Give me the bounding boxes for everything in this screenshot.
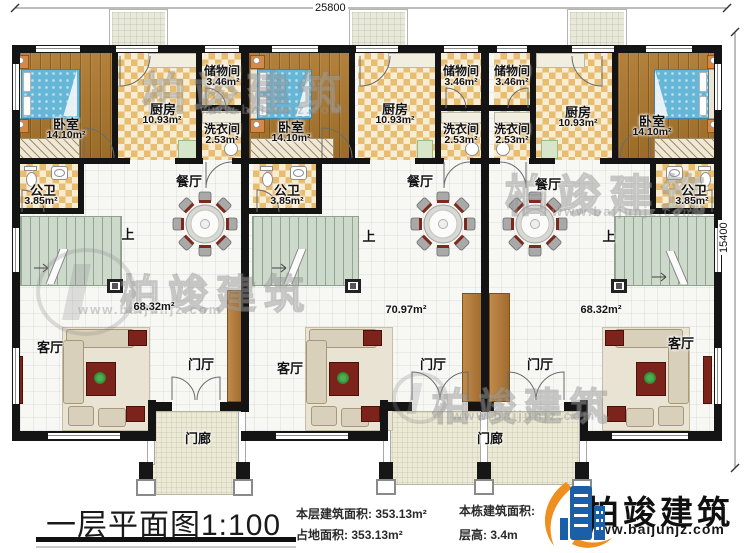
room-area-bedroom-right: 14.10m²: [632, 126, 671, 138]
logo-tower-small: [560, 518, 568, 540]
room-label-porch-left: 门廊: [185, 428, 211, 447]
room-label-living-right: 客厅: [668, 333, 694, 352]
room-area-laundry-right: 2.53m²: [495, 134, 528, 146]
room-label-dining-middle: 餐厅: [407, 171, 433, 190]
room-label-living-left: 客厅: [37, 337, 63, 356]
title-underline-light: [36, 546, 296, 548]
watermark-url: www.baijunjz.com: [200, 102, 344, 117]
stairs-up-label-right: 上: [602, 226, 615, 245]
room-area-laundry-left: 2.53m²: [205, 134, 238, 146]
room-area-kitchen-middle: 10.93m²: [375, 114, 414, 126]
room-label-foyer-left: 门厅: [188, 354, 214, 373]
room-area-bedroom-left: 14.10m²: [46, 129, 85, 141]
room-label-dining-right: 餐厅: [535, 174, 561, 193]
stat-label: 层高:: [459, 528, 490, 542]
stairs-up-label-middle: 上: [362, 226, 375, 245]
room-label-foyer-middle: 门厅: [420, 354, 446, 373]
room-label-living-middle: 客厅: [277, 358, 303, 377]
stat-label: 本栋建筑面积:: [459, 504, 535, 518]
room-area-bathroom-middle: 3.85m²: [270, 195, 303, 207]
stat-value: 353.13m²: [351, 528, 402, 542]
room-area-storage-middle: 3.46m²: [444, 76, 477, 88]
unit-area-right: 68.32m²: [581, 304, 622, 316]
room-area-kitchen-right: 10.93m²: [558, 117, 597, 129]
dimension-top: 25800: [313, 2, 348, 14]
watermark-url: www.baijunjz.com: [452, 408, 596, 423]
dimension-right: 15400: [718, 220, 730, 255]
stat-value: 353.13m²: [375, 507, 426, 521]
stat-label: 占地面积:: [296, 528, 351, 542]
room-area-kitchen-left: 10.93m²: [142, 114, 181, 126]
stat-value: 3.4m: [490, 528, 517, 542]
room-area-laundry-middle: 2.53m²: [444, 134, 477, 146]
room-area-storage-left: 3.46m²: [206, 76, 239, 88]
stairs-up-label-left: 上: [121, 224, 134, 243]
brand-logo-icon: [536, 478, 620, 550]
title-underline: [36, 537, 296, 542]
stat-floor-height: 层高: 3.4m: [459, 526, 518, 543]
stat-footprint: 占地面积: 353.13m²: [296, 526, 403, 543]
room-label-foyer-right: 门厅: [527, 354, 553, 373]
room-label-dining-left: 餐厅: [176, 171, 202, 190]
unit-area-middle: 70.97m²: [386, 304, 427, 316]
floor-plan: 25800 15400 卧室 14.10m² 厨房 10.93m² 储物间 3.…: [0, 0, 750, 553]
dining-table-left: [173, 192, 237, 256]
unit-area-left: 68.32m²: [134, 301, 175, 313]
room-area-storage-right: 3.46m²: [495, 76, 528, 88]
stat-building-area: 本栋建筑面积:: [459, 502, 535, 519]
logo-tower-side: [594, 506, 605, 540]
room-area-bathroom-left: 3.85m²: [24, 195, 57, 207]
room-area-bedroom-middle: 14.10m²: [271, 132, 310, 144]
stat-label: 本层建筑面积:: [296, 507, 375, 521]
room-area-bathroom-right: 3.85m²: [675, 195, 708, 207]
dining-table-middle: [411, 192, 475, 256]
room-label-porch-middle: 门廊: [477, 428, 503, 447]
stat-floor-area: 本层建筑面积: 353.13m²: [296, 505, 427, 522]
